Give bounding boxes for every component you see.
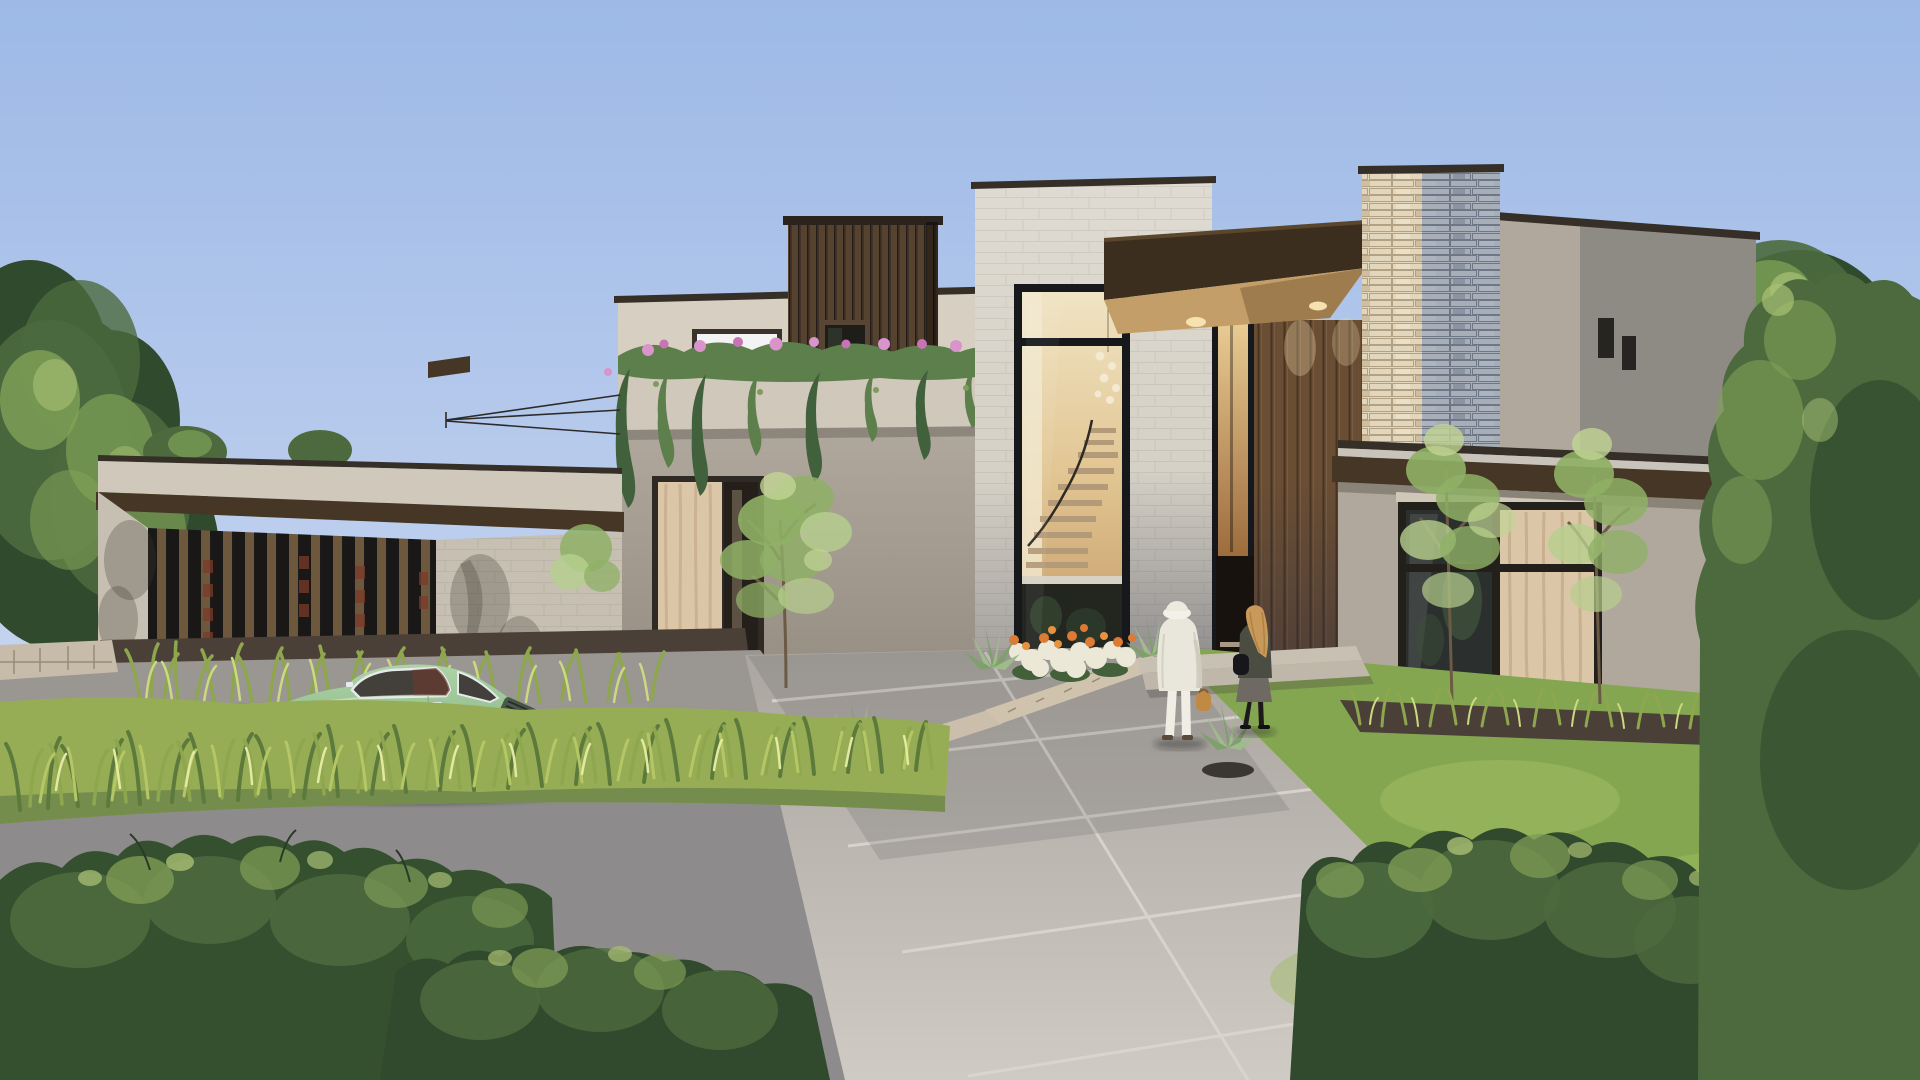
bush-right-mass — [1290, 828, 1752, 1080]
architectural-rendering — [0, 0, 1920, 1080]
black-bag — [1233, 654, 1249, 675]
trees-far-right-foreground — [1695, 273, 1920, 1080]
scene-canvas — [0, 0, 1920, 1080]
white-coat — [1157, 616, 1201, 691]
small-window — [1622, 336, 1636, 370]
entry-canopy — [1104, 220, 1366, 334]
gray-skirt — [1236, 676, 1272, 702]
tan-handbag — [1196, 692, 1211, 711]
car-mirror — [346, 682, 353, 687]
downlight — [1186, 317, 1206, 327]
downlight — [1309, 302, 1327, 311]
stair-glass-wall — [1014, 284, 1130, 662]
small-window — [1598, 318, 1614, 358]
